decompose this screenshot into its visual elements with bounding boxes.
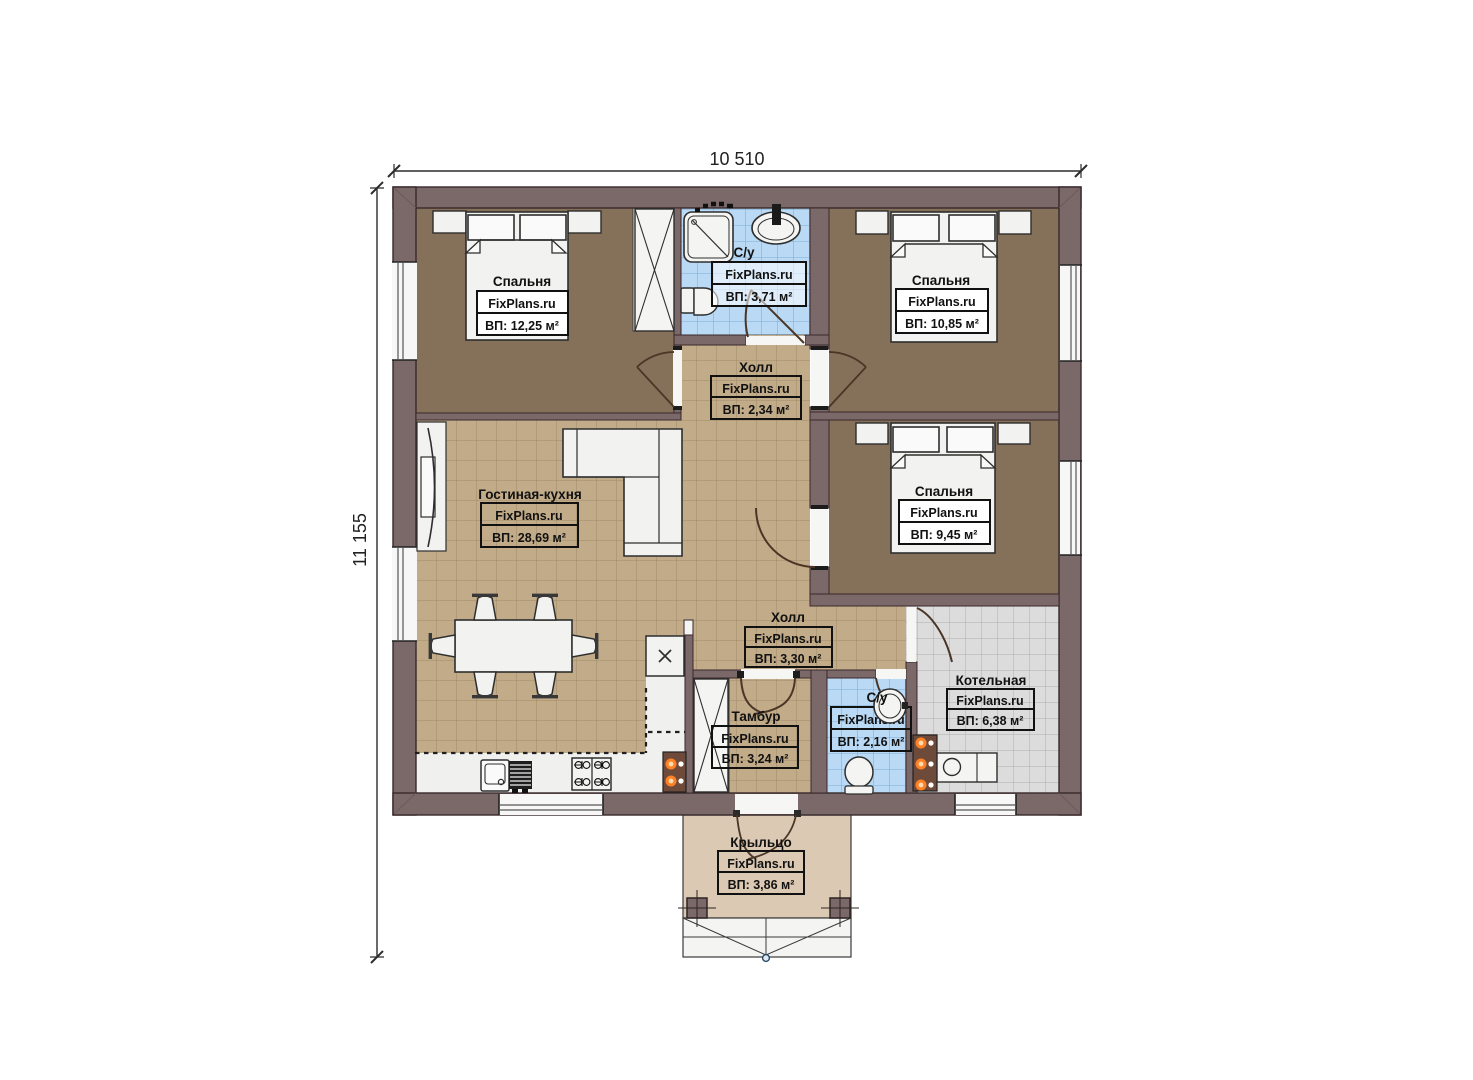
svg-text:FixPlans.ru: FixPlans.ru — [910, 506, 977, 520]
svg-text:Гостиная-кухня: Гостиная-кухня — [478, 487, 581, 502]
svg-text:11 155: 11 155 — [350, 513, 370, 567]
svg-text:FixPlans.ru: FixPlans.ru — [721, 732, 788, 746]
svg-text:ВП: 3,30 м²: ВП: 3,30 м² — [755, 652, 822, 666]
svg-text:FixPlans.ru: FixPlans.ru — [727, 857, 794, 871]
svg-text:ВП: 12,25 м²: ВП: 12,25 м² — [485, 319, 559, 333]
svg-text:Спальня: Спальня — [493, 274, 551, 289]
svg-text:Холл: Холл — [771, 610, 805, 625]
svg-text:FixPlans.ru: FixPlans.ru — [488, 297, 555, 311]
svg-text:Крыльцо: Крыльцо — [730, 835, 791, 850]
svg-text:ВП: 10,85 м²: ВП: 10,85 м² — [905, 317, 979, 331]
svg-text:ВП: 3,71 м²: ВП: 3,71 м² — [726, 290, 793, 304]
svg-text:ВП: 6,38 м²: ВП: 6,38 м² — [957, 714, 1024, 728]
svg-text:Холл: Холл — [739, 360, 773, 375]
svg-text:С/у: С/у — [866, 690, 888, 705]
svg-text:С/у: С/у — [733, 245, 755, 260]
svg-text:Спальня: Спальня — [912, 273, 970, 288]
svg-text:FixPlans.ru: FixPlans.ru — [754, 632, 821, 646]
svg-text:FixPlans.ru: FixPlans.ru — [495, 509, 562, 523]
svg-text:ВП: 2,16 м²: ВП: 2,16 м² — [838, 735, 905, 749]
svg-text:ВП: 3,86 м²: ВП: 3,86 м² — [728, 878, 795, 892]
svg-text:FixPlans.ru: FixPlans.ru — [956, 694, 1023, 708]
svg-text:Тамбур: Тамбур — [732, 709, 781, 724]
svg-text:FixPlans.ru: FixPlans.ru — [908, 295, 975, 309]
svg-text:ВП: 28,69 м²: ВП: 28,69 м² — [492, 531, 566, 545]
svg-text:ВП: 9,45 м²: ВП: 9,45 м² — [911, 528, 978, 542]
svg-text:FixPlans.ru: FixPlans.ru — [725, 268, 792, 282]
svg-text:10 510: 10 510 — [709, 149, 764, 169]
svg-text:Спальня: Спальня — [915, 484, 973, 499]
svg-text:Котельная: Котельная — [956, 673, 1027, 688]
svg-text:ВП: 3,24 м²: ВП: 3,24 м² — [722, 752, 789, 766]
svg-text:ВП: 2,34 м²: ВП: 2,34 м² — [723, 403, 790, 417]
svg-text:FixPlans.ru: FixPlans.ru — [722, 382, 789, 396]
